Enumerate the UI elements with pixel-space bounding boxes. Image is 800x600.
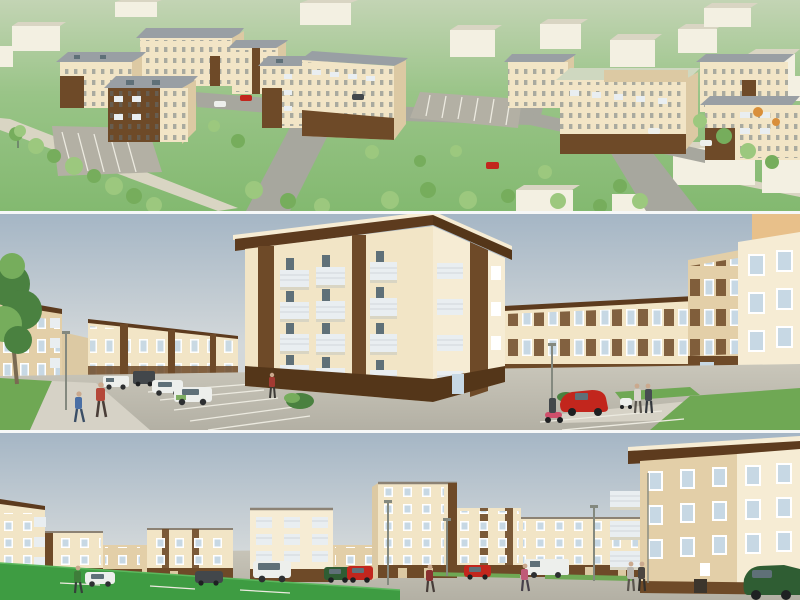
screenshot-root [0, 0, 800, 600]
car-white [648, 128, 660, 134]
car-white [214, 101, 226, 107]
car-red [486, 162, 499, 169]
car-white [700, 140, 712, 146]
orange-tree [753, 107, 763, 117]
apartment-building [457, 508, 521, 575]
suv-dark-green [744, 565, 800, 600]
render-panel-street-plaza [0, 433, 800, 600]
apartment-building [556, 68, 700, 154]
hero-balcony-column [610, 491, 640, 570]
render-panel-aerial [0, 0, 800, 211]
hero-apartment-building [233, 214, 512, 402]
car-red [240, 95, 252, 101]
apartment-building [372, 483, 457, 580]
car-dark [352, 94, 364, 100]
apartment-building [104, 76, 198, 144]
render-panel-street-parking [0, 214, 800, 430]
